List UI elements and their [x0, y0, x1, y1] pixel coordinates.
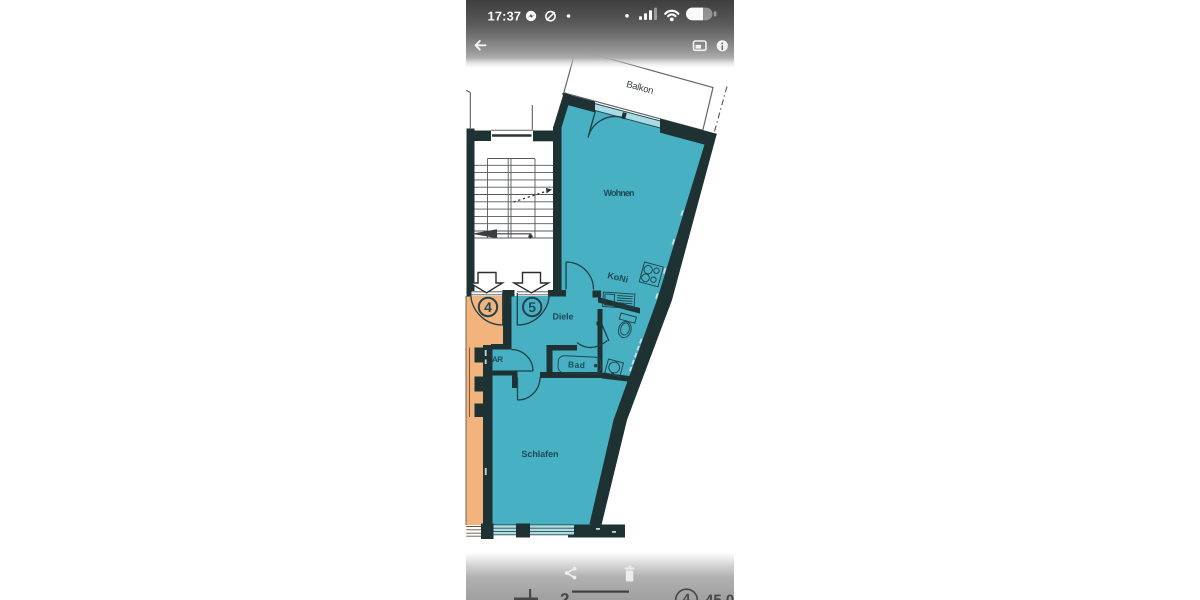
svg-text:17:37: 17:37 [488, 9, 522, 24]
svg-text:AR: AR [492, 355, 503, 364]
svg-text:5: 5 [528, 299, 536, 315]
svg-text:45,0: 45,0 [705, 592, 734, 600]
svg-text:Bad: Bad [568, 359, 585, 370]
svg-text:4: 4 [683, 591, 691, 600]
svg-text:Schlafen: Schlafen [522, 449, 559, 459]
svg-text:Wohnen: Wohnen [604, 188, 635, 198]
svg-text:Diele: Diele [553, 312, 574, 322]
svg-text:2: 2 [560, 590, 569, 600]
svg-text:4: 4 [484, 299, 492, 315]
